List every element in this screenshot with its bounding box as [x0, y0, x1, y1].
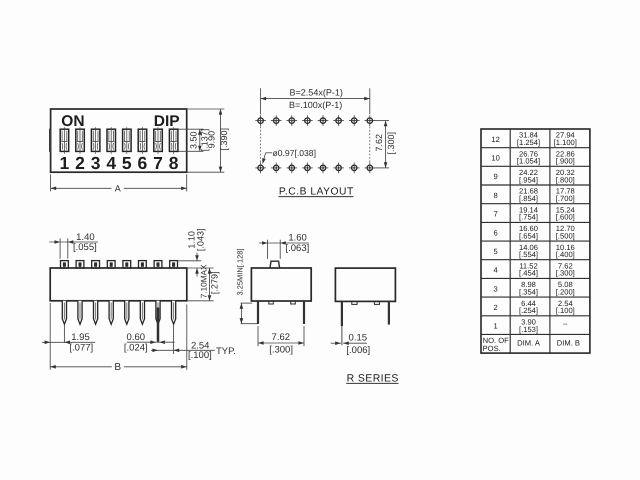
svg-text:[.100]: [.100] — [556, 306, 575, 315]
svg-text:0.15: 0.15 — [349, 333, 368, 344]
svg-text:[.063]: [.063] — [286, 243, 310, 254]
svg-text:[.800]: [.800] — [556, 175, 575, 184]
svg-text:[.100]: [.100] — [188, 350, 212, 361]
svg-text:5: 5 — [122, 153, 132, 173]
svg-text:ø0.97[.038]: ø0.97[.038] — [273, 148, 316, 158]
svg-text:7: 7 — [153, 153, 163, 173]
svg-text:B=.100x(P-1): B=.100x(P-1) — [289, 100, 342, 110]
svg-text:12: 12 — [491, 135, 499, 144]
svg-text:[.400]: [.400] — [556, 250, 575, 259]
svg-text:[.700]: [.700] — [556, 194, 575, 203]
svg-text:[.055]: [.055] — [73, 242, 97, 253]
svg-text:9: 9 — [493, 172, 497, 181]
svg-text:[.954]: [.954] — [519, 175, 538, 184]
svg-text:B=2.54x(P-1): B=2.54x(P-1) — [290, 87, 343, 97]
svg-text:3.50: 3.50 — [189, 131, 199, 149]
svg-text:B: B — [114, 362, 121, 373]
svg-text:1.95: 1.95 — [71, 332, 90, 343]
svg-text:[.024]: [.024] — [124, 343, 148, 354]
svg-text:[.300]: [.300] — [269, 345, 293, 356]
svg-text:5: 5 — [493, 247, 497, 256]
svg-text:1: 1 — [493, 322, 497, 331]
svg-text:[1.254]: [1.254] — [517, 138, 540, 147]
svg-text:[.354]: [.354] — [519, 287, 538, 296]
svg-text:[1.100]: [1.100] — [554, 138, 577, 147]
svg-text:3: 3 — [493, 284, 497, 293]
svg-text:6: 6 — [493, 228, 497, 237]
svg-text:[.500]: [.500] — [556, 231, 575, 240]
svg-text:[.390]: [.390] — [219, 128, 229, 151]
svg-text:[.153]: [.153] — [519, 325, 538, 334]
svg-text:[.854]: [.854] — [519, 194, 538, 203]
svg-text:[.077]: [.077] — [69, 343, 93, 354]
svg-text:[.654]: [.654] — [519, 231, 538, 240]
svg-text:P.C.B LAYOUT: P.C.B LAYOUT — [279, 187, 354, 198]
svg-text:2: 2 — [75, 153, 85, 173]
svg-text:–: – — [563, 319, 568, 328]
svg-text:A: A — [115, 183, 121, 193]
svg-text:[.600]: [.600] — [556, 213, 575, 222]
svg-text:DIM. B: DIM. B — [557, 339, 580, 348]
svg-text:3: 3 — [91, 153, 101, 173]
svg-text:7.10MAX: 7.10MAX — [199, 264, 208, 298]
svg-text:6: 6 — [138, 153, 148, 173]
svg-text:10: 10 — [491, 154, 499, 163]
svg-text:[.043]: [.043] — [196, 229, 206, 252]
svg-text:2: 2 — [493, 303, 497, 312]
svg-text:9.90: 9.90 — [206, 131, 216, 149]
svg-text:[.554]: [.554] — [519, 250, 538, 259]
svg-text:DIM. A: DIM. A — [517, 339, 541, 348]
svg-text:[.254]: [.254] — [519, 306, 538, 315]
svg-text:[.200]: [.200] — [556, 287, 575, 296]
svg-text:TYP.: TYP. — [216, 346, 236, 357]
svg-text:[.454]: [.454] — [519, 269, 538, 278]
svg-text:8: 8 — [493, 191, 497, 200]
svg-text:7.62: 7.62 — [374, 134, 384, 152]
svg-text:7: 7 — [493, 210, 497, 219]
svg-text:ON: ON — [61, 113, 84, 130]
svg-text:[.279]: [.279] — [209, 272, 219, 295]
svg-text:3.25MIN[.128]: 3.25MIN[.128] — [235, 248, 244, 295]
svg-text:8: 8 — [169, 153, 179, 173]
svg-text:[.300]: [.300] — [386, 132, 396, 155]
svg-text:R SERIES: R SERIES — [347, 373, 399, 385]
svg-text:[.300]: [.300] — [556, 269, 575, 278]
svg-text:7.62: 7.62 — [272, 332, 291, 343]
svg-text:4: 4 — [493, 266, 497, 275]
svg-text:4: 4 — [106, 153, 116, 173]
svg-text:[.754]: [.754] — [519, 213, 538, 222]
svg-text:[.900]: [.900] — [556, 157, 575, 166]
svg-text:[.006]: [.006] — [346, 345, 370, 356]
svg-text:[1.054]: [1.054] — [517, 157, 540, 166]
svg-text:1.60: 1.60 — [288, 232, 307, 243]
svg-text:POS.: POS. — [483, 344, 501, 353]
svg-text:0.60: 0.60 — [127, 332, 146, 343]
svg-text:1: 1 — [60, 153, 70, 173]
